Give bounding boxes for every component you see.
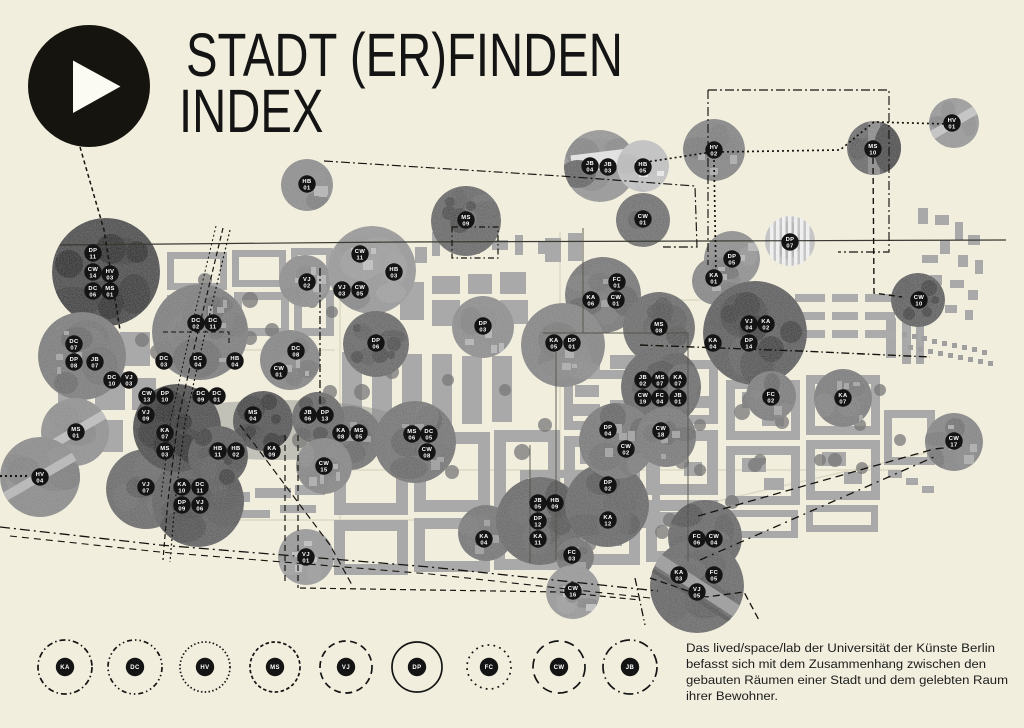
svg-text:DP: DP: [604, 480, 613, 486]
svg-text:01: 01: [106, 292, 114, 298]
svg-text:02: 02: [767, 398, 774, 404]
svg-text:07: 07: [70, 345, 77, 351]
svg-text:10: 10: [915, 301, 922, 307]
svg-text:09: 09: [178, 506, 186, 512]
svg-text:MS: MS: [354, 428, 364, 434]
svg-text:DC: DC: [208, 318, 218, 324]
svg-text:DP: DP: [89, 248, 98, 254]
svg-text:FC: FC: [710, 570, 719, 576]
svg-text:DP: DP: [568, 338, 577, 344]
svg-text:05: 05: [710, 576, 718, 582]
svg-text:11: 11: [197, 488, 204, 494]
svg-text:08: 08: [292, 352, 300, 358]
svg-text:08: 08: [337, 434, 345, 440]
svg-text:FC: FC: [485, 665, 494, 671]
svg-text:FC: FC: [656, 393, 665, 399]
svg-text:KA: KA: [673, 375, 683, 381]
svg-text:DP: DP: [786, 237, 795, 243]
svg-text:VJ: VJ: [125, 375, 133, 381]
svg-text:03: 03: [125, 381, 133, 387]
svg-text:09: 09: [551, 504, 559, 510]
svg-text:HB: HB: [638, 162, 647, 168]
svg-text:FC: FC: [613, 277, 622, 283]
svg-text:HV: HV: [106, 269, 115, 275]
svg-text:DC: DC: [212, 391, 222, 397]
svg-text:07: 07: [839, 399, 846, 405]
svg-text:HV: HV: [200, 665, 209, 671]
svg-text:MS: MS: [270, 665, 280, 671]
svg-text:KA: KA: [60, 665, 70, 671]
svg-text:befasst sich mit dem Zusammenh: befasst sich mit dem Zusammenhang zwisch…: [686, 657, 986, 671]
svg-text:03: 03: [160, 362, 168, 368]
svg-text:13: 13: [143, 397, 151, 403]
svg-text:09: 09: [197, 397, 205, 403]
svg-text:HV: HV: [36, 472, 45, 478]
svg-text:10: 10: [869, 150, 876, 156]
svg-text:KA: KA: [160, 428, 170, 434]
svg-text:09: 09: [268, 452, 276, 458]
svg-text:08: 08: [655, 328, 663, 334]
svg-text:JB: JB: [639, 375, 647, 381]
svg-text:07: 07: [656, 381, 663, 387]
svg-text:MS: MS: [654, 322, 664, 328]
svg-text:DP: DP: [412, 665, 421, 671]
svg-text:DP: DP: [321, 410, 330, 416]
svg-text:CW: CW: [914, 295, 925, 301]
svg-text:CW: CW: [274, 366, 285, 372]
svg-text:DP: DP: [604, 425, 613, 431]
svg-text:10: 10: [108, 381, 115, 387]
svg-text:06: 06: [408, 435, 416, 441]
svg-text:VJ: VJ: [302, 552, 310, 558]
svg-text:CW: CW: [621, 444, 632, 450]
svg-text:04: 04: [745, 325, 753, 331]
svg-text:DP: DP: [178, 500, 187, 506]
svg-text:KA: KA: [603, 515, 613, 521]
svg-text:10: 10: [161, 397, 168, 403]
svg-text:09: 09: [462, 221, 470, 227]
svg-text:02: 02: [232, 452, 239, 458]
svg-text:MS: MS: [248, 410, 258, 416]
svg-text:MS: MS: [655, 375, 665, 381]
svg-text:12: 12: [534, 522, 541, 528]
svg-text:03: 03: [106, 275, 114, 281]
svg-text:18: 18: [657, 432, 665, 438]
svg-text:DP: DP: [534, 516, 543, 522]
svg-text:03: 03: [390, 273, 398, 279]
svg-text:MS: MS: [407, 429, 417, 435]
svg-text:FC: FC: [568, 550, 577, 556]
svg-text:05: 05: [693, 593, 701, 599]
svg-text:05: 05: [356, 291, 364, 297]
svg-text:DP: DP: [372, 338, 381, 344]
svg-text:VJ: VJ: [303, 277, 311, 283]
svg-text:04: 04: [710, 540, 718, 546]
svg-text:17: 17: [950, 442, 957, 448]
svg-text:DP: DP: [70, 357, 79, 363]
svg-text:01: 01: [568, 344, 576, 350]
svg-text:DC: DC: [191, 318, 201, 324]
svg-text:KA: KA: [549, 338, 559, 344]
svg-text:MS: MS: [71, 427, 81, 433]
svg-text:01: 01: [303, 185, 311, 191]
svg-text:DC: DC: [193, 356, 203, 362]
svg-text:DC: DC: [88, 286, 98, 292]
svg-text:HB: HB: [302, 179, 311, 185]
svg-text:04: 04: [249, 416, 257, 422]
svg-text:VJ: VJ: [745, 319, 753, 325]
svg-text:09: 09: [142, 416, 150, 422]
svg-text:VJ: VJ: [142, 482, 150, 488]
svg-text:05: 05: [728, 260, 736, 266]
svg-text:DC: DC: [424, 429, 434, 435]
svg-text:06: 06: [89, 292, 97, 298]
svg-text:06: 06: [304, 416, 312, 422]
svg-text:JB: JB: [534, 498, 542, 504]
svg-text:07: 07: [161, 434, 168, 440]
svg-text:DC: DC: [291, 346, 301, 352]
svg-text:DC: DC: [196, 391, 206, 397]
svg-text:KA: KA: [336, 428, 346, 434]
svg-text:03: 03: [604, 168, 612, 174]
svg-text:CW: CW: [422, 447, 433, 453]
svg-text:12: 12: [604, 521, 611, 527]
svg-text:07: 07: [142, 488, 149, 494]
svg-text:03: 03: [568, 556, 576, 562]
svg-text:01: 01: [613, 283, 621, 289]
svg-text:VJ: VJ: [142, 410, 150, 416]
svg-text:KA: KA: [838, 393, 848, 399]
svg-text:11: 11: [90, 254, 97, 260]
svg-text:DP: DP: [745, 338, 754, 344]
svg-text:CW: CW: [611, 295, 622, 301]
svg-text:HB: HB: [389, 267, 398, 273]
svg-text:DP: DP: [728, 254, 737, 260]
svg-text:KA: KA: [479, 534, 489, 540]
svg-text:JB: JB: [604, 162, 612, 168]
svg-text:07: 07: [674, 381, 681, 387]
svg-text:MS: MS: [105, 286, 115, 292]
svg-text:MS: MS: [160, 446, 170, 452]
svg-text:06: 06: [372, 344, 380, 350]
svg-text:02: 02: [622, 450, 629, 456]
svg-text:11: 11: [215, 452, 222, 458]
svg-text:Das lived/space/lab der Univer: Das lived/space/lab der Universität der …: [686, 641, 995, 655]
svg-text:HV: HV: [948, 118, 957, 124]
svg-text:13: 13: [321, 416, 329, 422]
svg-text:JB: JB: [626, 665, 635, 671]
svg-text:05: 05: [550, 344, 558, 350]
svg-text:02: 02: [192, 324, 199, 330]
svg-text:VJ: VJ: [693, 587, 701, 593]
svg-text:INDEX: INDEX: [179, 77, 323, 145]
svg-text:05: 05: [534, 504, 542, 510]
svg-text:14: 14: [745, 344, 753, 350]
svg-text:DC: DC: [195, 482, 205, 488]
svg-text:KA: KA: [674, 570, 684, 576]
svg-text:01: 01: [639, 220, 647, 226]
svg-text:JB: JB: [674, 393, 682, 399]
svg-text:10: 10: [178, 488, 185, 494]
svg-text:15: 15: [320, 467, 328, 473]
svg-text:ihrer Bewohner.: ihrer Bewohner.: [686, 689, 778, 703]
svg-text:16: 16: [569, 592, 577, 598]
svg-text:KA: KA: [177, 482, 187, 488]
svg-text:06: 06: [196, 506, 204, 512]
svg-text:02: 02: [303, 283, 310, 289]
svg-text:01: 01: [213, 397, 221, 403]
svg-text:MS: MS: [868, 144, 878, 150]
svg-text:04: 04: [604, 431, 612, 437]
svg-text:DC: DC: [130, 665, 140, 671]
svg-text:08: 08: [70, 363, 78, 369]
svg-text:07: 07: [91, 363, 98, 369]
svg-text:JB: JB: [304, 410, 312, 416]
svg-text:11: 11: [535, 540, 542, 546]
svg-text:KA: KA: [586, 295, 596, 301]
svg-text:KA: KA: [267, 446, 277, 452]
svg-text:01: 01: [710, 279, 718, 285]
svg-text:HV: HV: [710, 145, 719, 151]
svg-text:DC: DC: [107, 375, 117, 381]
svg-text:03: 03: [479, 327, 487, 333]
svg-text:02: 02: [710, 151, 717, 157]
svg-text:11: 11: [357, 255, 364, 261]
svg-text:05: 05: [639, 168, 647, 174]
svg-text:CW: CW: [319, 461, 330, 467]
svg-text:FC: FC: [767, 392, 776, 398]
svg-text:CW: CW: [554, 665, 565, 671]
svg-text:02: 02: [604, 486, 611, 492]
svg-text:FC: FC: [693, 534, 702, 540]
svg-text:03: 03: [161, 452, 169, 458]
svg-text:DC: DC: [159, 356, 169, 362]
svg-text:04: 04: [36, 478, 44, 484]
svg-text:01: 01: [612, 301, 620, 307]
svg-text:JB: JB: [91, 357, 99, 363]
svg-text:CW: CW: [638, 214, 649, 220]
svg-text:KA: KA: [708, 338, 718, 344]
svg-text:04: 04: [709, 344, 717, 350]
svg-text:04: 04: [194, 362, 202, 368]
svg-text:CW: CW: [656, 426, 667, 432]
svg-text:CW: CW: [638, 393, 649, 399]
svg-text:01: 01: [948, 124, 956, 130]
svg-text:HB: HB: [231, 446, 240, 452]
svg-text:19: 19: [639, 399, 647, 405]
svg-text:KA: KA: [709, 273, 719, 279]
svg-text:VJ: VJ: [342, 665, 350, 671]
svg-text:CW: CW: [355, 285, 366, 291]
svg-text:KA: KA: [533, 534, 543, 540]
svg-text:11: 11: [210, 324, 217, 330]
svg-text:CW: CW: [709, 534, 720, 540]
svg-text:HB: HB: [230, 356, 239, 362]
svg-text:02: 02: [639, 381, 646, 387]
svg-text:01: 01: [302, 558, 310, 564]
svg-text:CW: CW: [355, 249, 366, 255]
svg-text:JB: JB: [586, 161, 594, 167]
svg-text:06: 06: [693, 540, 701, 546]
svg-text:CW: CW: [88, 267, 99, 273]
svg-text:VJ: VJ: [338, 285, 346, 291]
svg-text:HB: HB: [550, 498, 559, 504]
svg-text:04: 04: [586, 167, 594, 173]
svg-text:06: 06: [587, 301, 595, 307]
svg-text:04: 04: [656, 399, 664, 405]
svg-text:07: 07: [786, 243, 793, 249]
svg-text:DC: DC: [69, 339, 79, 345]
svg-text:HB: HB: [213, 446, 222, 452]
svg-text:03: 03: [675, 576, 683, 582]
svg-text:14: 14: [89, 273, 97, 279]
svg-text:DP: DP: [479, 321, 488, 327]
svg-text:MS: MS: [461, 215, 471, 221]
svg-text:DP: DP: [161, 391, 170, 397]
svg-text:04: 04: [480, 540, 488, 546]
svg-text:05: 05: [425, 435, 433, 441]
svg-text:05: 05: [355, 434, 363, 440]
svg-text:CW: CW: [142, 391, 153, 397]
svg-text:04: 04: [231, 362, 239, 368]
svg-text:03: 03: [338, 291, 346, 297]
svg-text:08: 08: [423, 453, 431, 459]
svg-text:CW: CW: [949, 436, 960, 442]
svg-text:gebauten Räumen einer Stadt un: gebauten Räumen einer Stadt und dem gele…: [686, 673, 1008, 687]
svg-text:01: 01: [275, 372, 283, 378]
svg-text:VJ: VJ: [196, 500, 204, 506]
svg-text:KA: KA: [761, 319, 771, 325]
svg-text:02: 02: [762, 325, 769, 331]
svg-text:01: 01: [72, 433, 80, 439]
svg-text:01: 01: [674, 399, 682, 405]
svg-text:CW: CW: [568, 586, 579, 592]
